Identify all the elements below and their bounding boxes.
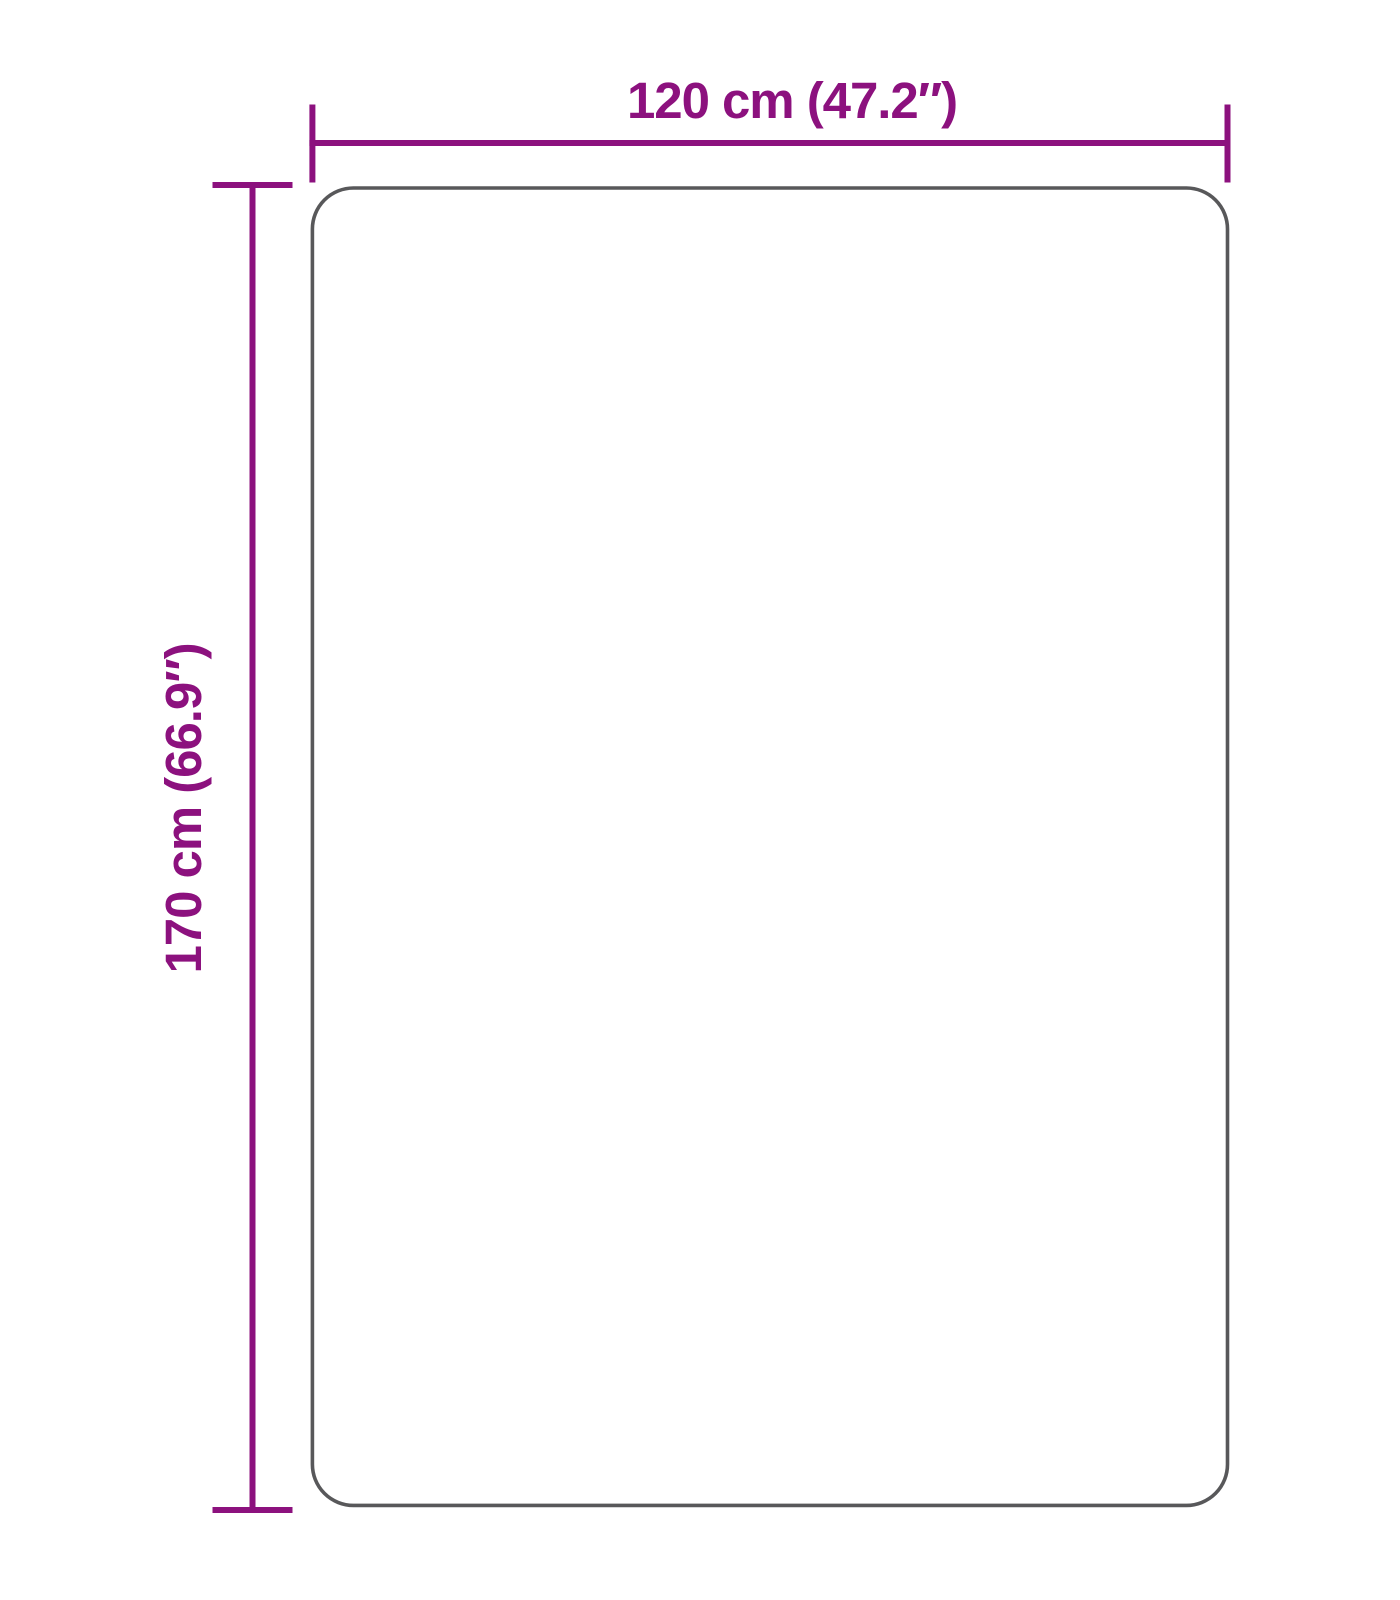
svg-text:120 cm (47.2″): 120 cm (47.2″): [627, 72, 957, 129]
svg-text:170 cm (66.9″): 170 cm (66.9″): [155, 643, 212, 973]
